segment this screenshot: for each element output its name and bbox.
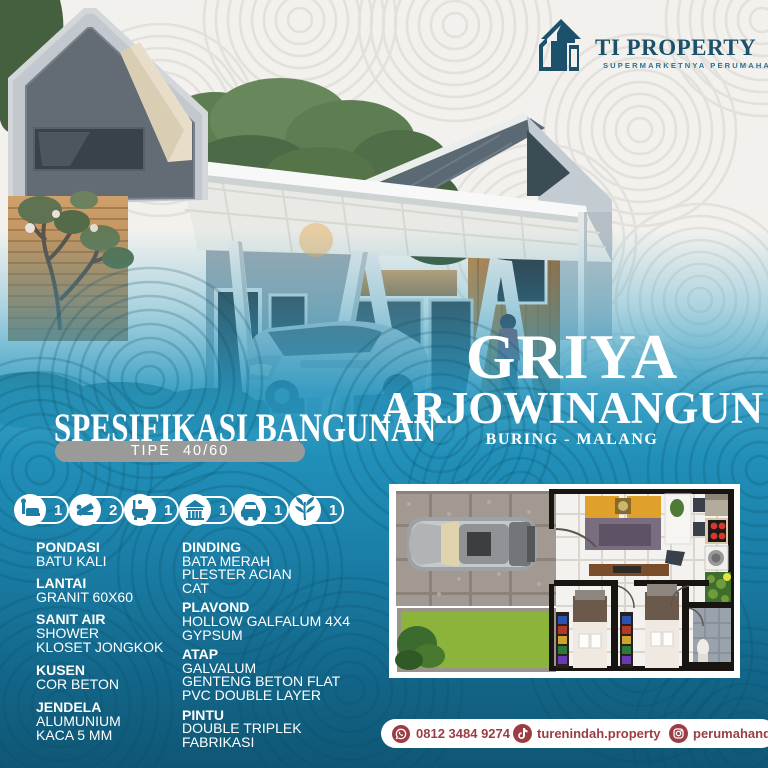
svg-text:2: 2 [109,502,117,519]
svg-text:1: 1 [274,502,282,519]
svg-text:1: 1 [54,502,62,519]
svg-text:1: 1 [219,502,227,519]
svg-text:1: 1 [329,502,337,519]
svg-text:1: 1 [164,502,172,519]
